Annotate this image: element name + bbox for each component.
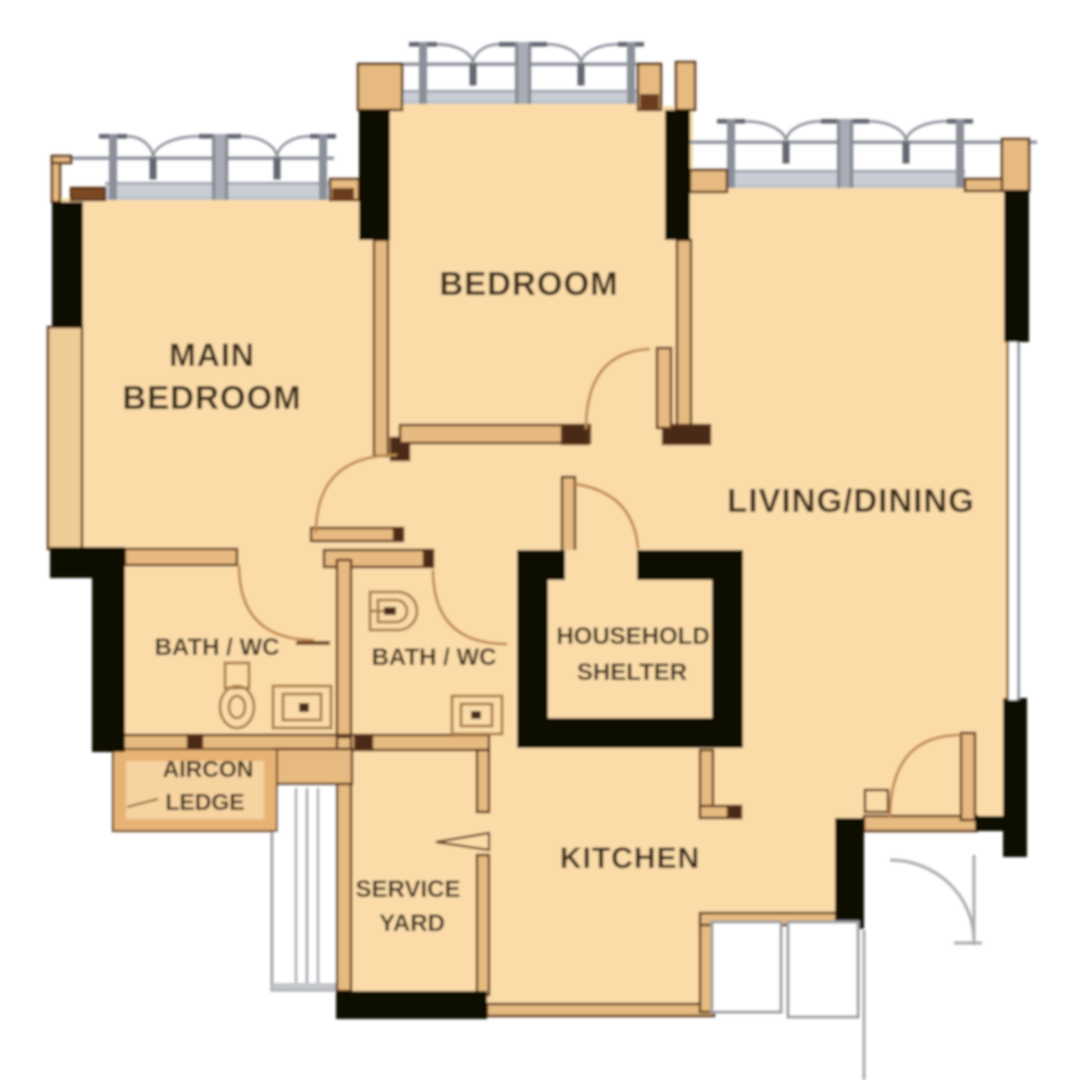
svg-text:LIVING/DINING: LIVING/DINING xyxy=(727,482,975,519)
svg-text:BATH / WC: BATH / WC xyxy=(372,644,497,671)
svg-text:BEDROOM: BEDROOM xyxy=(439,265,618,302)
svg-text:AIRCON: AIRCON xyxy=(163,756,254,782)
svg-text:KITCHEN: KITCHEN xyxy=(560,842,700,875)
svg-text:HOUSEHOLD: HOUSEHOLD xyxy=(556,623,709,650)
svg-text:YARD: YARD xyxy=(379,910,445,937)
svg-text:BEDROOM: BEDROOM xyxy=(122,379,301,416)
svg-text:LEDGE: LEDGE xyxy=(165,789,244,815)
svg-text:SERVICE: SERVICE xyxy=(356,876,461,903)
svg-text:SHELTER: SHELTER xyxy=(577,659,687,686)
svg-text:MAIN: MAIN xyxy=(169,337,255,373)
svg-text:BATH / WC: BATH / WC xyxy=(155,634,280,661)
